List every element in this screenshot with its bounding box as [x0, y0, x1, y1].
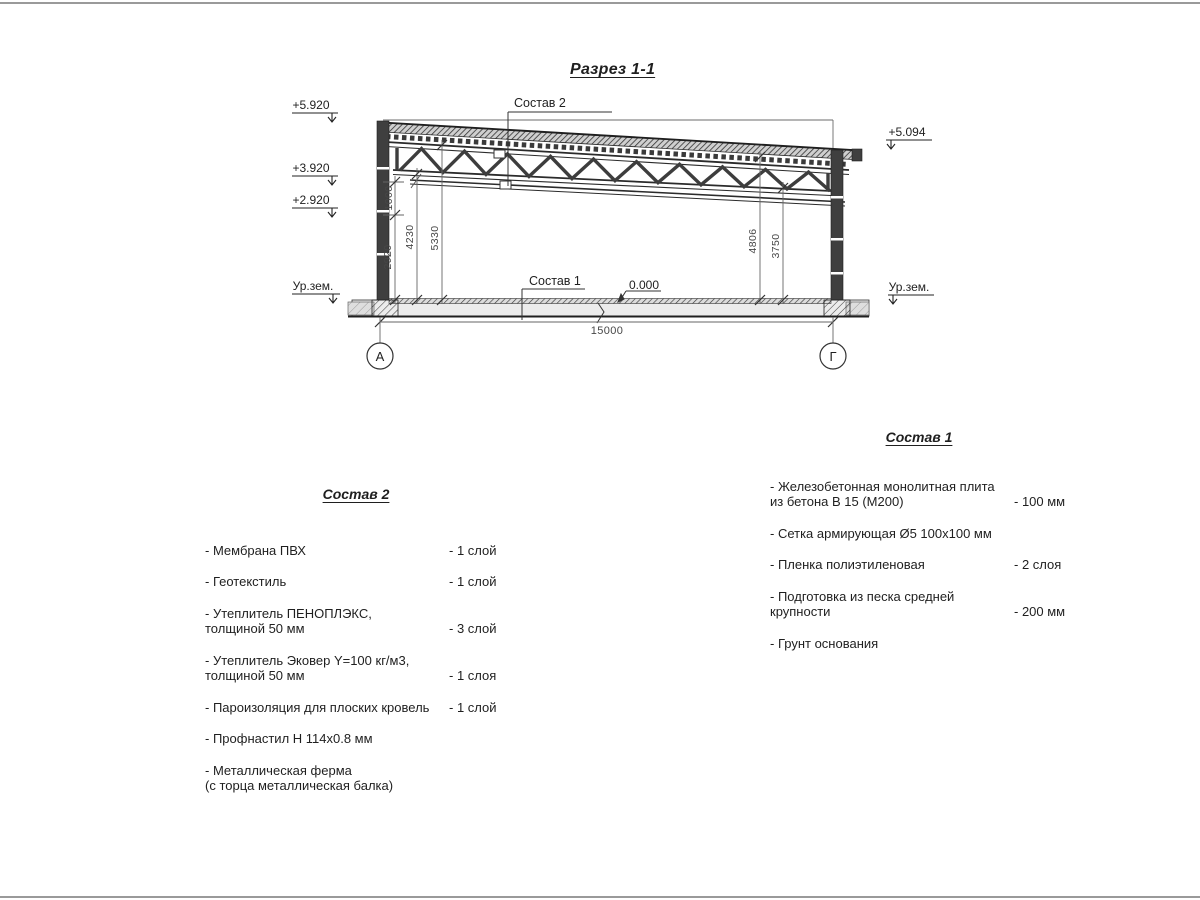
composition-1-title: Состав 1: [770, 430, 1068, 446]
dim-4230: 4230: [404, 225, 416, 250]
sheet-title: Разрез 1-1: [570, 61, 655, 79]
list-item: - Геотекстиль - 1 слой: [205, 574, 507, 590]
truss-connection-plate: [500, 181, 511, 189]
dim-1000: 1000: [383, 186, 395, 211]
list-item: - Железобетонная монолитная плитаиз бето…: [770, 479, 1068, 510]
dim-3750: 3750: [770, 234, 782, 259]
floor: [348, 299, 869, 324]
axis-letter-left: А: [367, 343, 393, 369]
dim-4806: 4806: [747, 229, 759, 254]
elevation-label-top-right: +5.094: [884, 125, 930, 139]
list-item: - Пленка полиэтиленовая - 2 слоя: [770, 557, 1068, 573]
vertical-dimensions: [383, 140, 783, 304]
list-item: - Металлическая ферма(с торца металличес…: [205, 763, 507, 794]
dim-5330: 5330: [429, 226, 441, 251]
list-item: - Подготовка из песка среднейкрупности -…: [770, 589, 1068, 620]
roof-end-cap: [852, 149, 862, 161]
truss-bottom-chord: [393, 170, 831, 191]
truss-connection-plate: [494, 150, 505, 158]
composition-1-list: Состав 1 - Железобетонная монолитная пли…: [770, 430, 1068, 667]
zero-level-label: 0.000: [629, 278, 659, 292]
list-item: - Грунт основания: [770, 636, 1068, 652]
dim-2920: 2920: [382, 245, 394, 270]
leader-label-roof: Состав 2: [514, 96, 566, 110]
foundation-left: [372, 300, 398, 316]
list-item: - Сетка армирующая Ø5 100х100 мм: [770, 526, 1068, 542]
right-wall: [831, 150, 843, 303]
floor-composition-layer: [389, 299, 831, 304]
elevation-label-top-left: +5.920: [288, 98, 334, 112]
list-item: - Утеплитель ПЕНОПЛЭКС,толщиной 50 мм - …: [205, 606, 507, 637]
elevation-label-truss-left: +3.920: [288, 161, 334, 175]
elevation-label-wall-left: +2.920: [288, 193, 334, 207]
list-item: - Пароизоляция для плоских кровель - 1 с…: [205, 700, 507, 716]
roof: [383, 123, 862, 165]
leader-label-floor: Состав 1: [529, 274, 581, 288]
ground-left: [348, 302, 374, 315]
list-item: - Мембрана ПВХ - 1 слой: [205, 543, 507, 559]
composition-2-title: Состав 2: [205, 487, 507, 503]
drawing-sheet: Разрез 1-1 +5.920 +3.920 +2.920 Ур.зем. …: [0, 0, 1200, 900]
ground-level-label-left: Ур.зем.: [290, 279, 336, 293]
list-item: - Утеплитель Эковер Y=100 кг/м3,толщиной…: [205, 653, 507, 684]
dim-span-15000: 15000: [584, 325, 630, 337]
list-item: - Профнастил Н 114х0.8 мм: [205, 731, 507, 747]
axis-letter-right: Г: [820, 343, 846, 369]
composition-2-list: Состав 2 - Мембрана ПВХ - 1 слой - Геоте…: [205, 487, 507, 810]
ground-level-label-right: Ур.зем.: [886, 280, 932, 294]
foundation-right: [824, 300, 850, 316]
